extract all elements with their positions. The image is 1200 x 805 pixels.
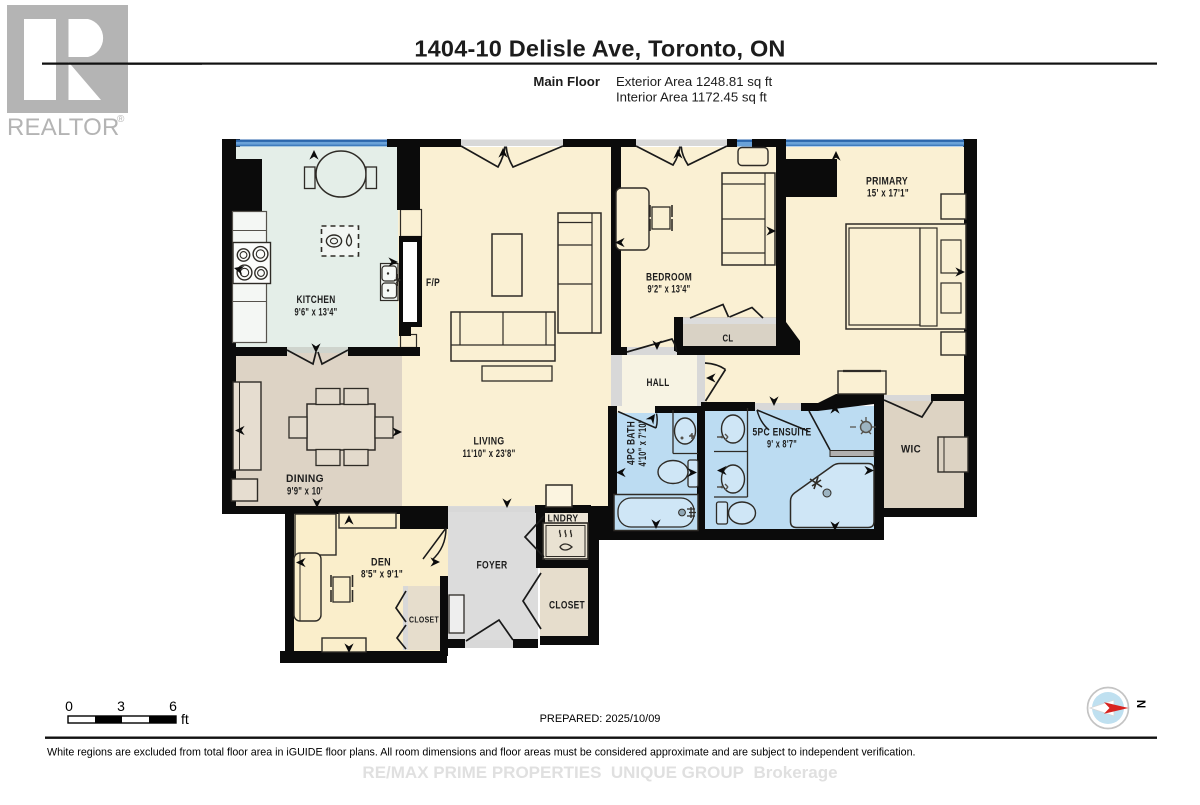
svg-text:White regions are excluded fro: White regions are excluded from total fl…	[47, 747, 916, 759]
svg-text:PRIMARY: PRIMARY	[866, 176, 908, 188]
svg-text:Main Floor: Main Floor	[533, 74, 600, 89]
svg-text:WIC: WIC	[901, 444, 921, 456]
svg-text:®: ®	[117, 114, 125, 125]
svg-text:4PC BATH: 4PC BATH	[626, 421, 638, 465]
svg-text:5PC ENSUITE: 5PC ENSUITE	[753, 427, 812, 439]
svg-text:F/P: F/P	[426, 277, 440, 289]
svg-text:REALTOR: REALTOR	[7, 114, 120, 141]
svg-text:CLOSET: CLOSET	[409, 615, 439, 625]
svg-text:3: 3	[117, 698, 125, 714]
svg-text:4'10" x 7'10": 4'10" x 7'10"	[637, 420, 649, 467]
svg-text:HALL: HALL	[647, 377, 670, 389]
svg-text:KITCHEN: KITCHEN	[297, 294, 336, 306]
svg-text:CLOSET: CLOSET	[549, 600, 585, 612]
svg-text:LNDRY: LNDRY	[548, 514, 579, 525]
svg-text:0: 0	[65, 698, 73, 714]
svg-text:LIVING: LIVING	[474, 436, 505, 448]
svg-text:N: N	[1134, 700, 1146, 708]
svg-text:FOYER: FOYER	[477, 560, 508, 572]
svg-text:9'2" x 13'4": 9'2" x 13'4"	[648, 284, 691, 296]
svg-text:PREPARED: 2025/10/09: PREPARED: 2025/10/09	[540, 713, 661, 725]
svg-text:ft: ft	[181, 711, 189, 727]
svg-text:1404-10 Delisle Ave, Toronto,: 1404-10 Delisle Ave, Toronto, ON	[414, 36, 785, 62]
svg-text:CL: CL	[723, 334, 734, 345]
svg-text:BEDROOM: BEDROOM	[646, 272, 692, 284]
svg-text:DEN: DEN	[371, 557, 391, 569]
svg-text:DINING: DINING	[286, 473, 324, 485]
svg-text:RE/MAX PRIME PROPERTIES UNIQU: RE/MAX PRIME PROPERTIES UNIQUE GROUP Bro…	[362, 763, 837, 782]
svg-text:15' x 17'1": 15' x 17'1"	[867, 188, 909, 200]
svg-text:Interior Area 1172.45 sq ft: Interior Area 1172.45 sq ft	[616, 90, 767, 105]
svg-text:6: 6	[169, 698, 177, 714]
svg-text:8'5" x 9'1": 8'5" x 9'1"	[361, 569, 403, 581]
svg-text:9'9" x 10': 9'9" x 10'	[287, 486, 323, 498]
svg-text:9'6" x 13'4": 9'6" x 13'4"	[295, 307, 338, 319]
svg-text:9' x 8'7": 9' x 8'7"	[767, 439, 797, 451]
svg-text:Exterior Area 1248.81 sq ft: Exterior Area 1248.81 sq ft	[616, 74, 772, 89]
svg-text:11'10" x 23'8": 11'10" x 23'8"	[463, 448, 516, 460]
